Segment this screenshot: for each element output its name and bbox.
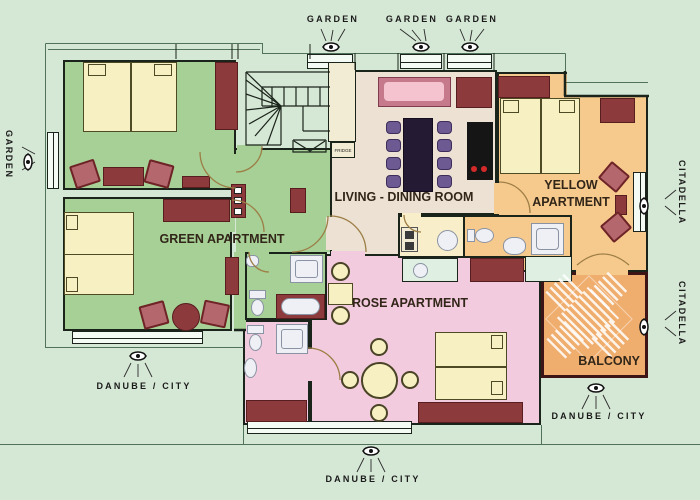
garden-label-top-3: GARDEN	[446, 14, 498, 24]
citadella-label-upper: CITADELLA	[677, 160, 687, 225]
danube-label-left: DANUBE / CITY	[96, 381, 191, 391]
green-apartment-label: GREEN APARTMENT	[160, 232, 285, 246]
floor-plan-page: { "labels": { "garden_top": ["GARDEN", "…	[0, 0, 700, 500]
garden-label-top-1: GARDEN	[307, 14, 359, 24]
yellow-label-line2: APARTMENT	[532, 194, 610, 211]
balcony-label: BALCONY	[550, 354, 640, 368]
stairs	[246, 72, 330, 152]
danube-label-right: DANUBE / CITY	[551, 411, 646, 421]
living-dining-label: LIVING - DINING ROOM	[335, 190, 474, 204]
rose-apartment-label: ROSE APARTMENT	[352, 296, 468, 310]
citadella-label-lower: CITADELLA	[677, 281, 687, 346]
danube-label-center: DANUBE / CITY	[325, 474, 420, 484]
line-overlay	[0, 0, 700, 500]
yellow-apartment-label: YELLOW APARTMENT	[532, 177, 610, 211]
yellow-label-line1: YELLOW	[532, 177, 610, 194]
garden-label-top-2: GARDEN	[386, 14, 438, 24]
garden-label-left: GARDEN	[4, 130, 14, 179]
